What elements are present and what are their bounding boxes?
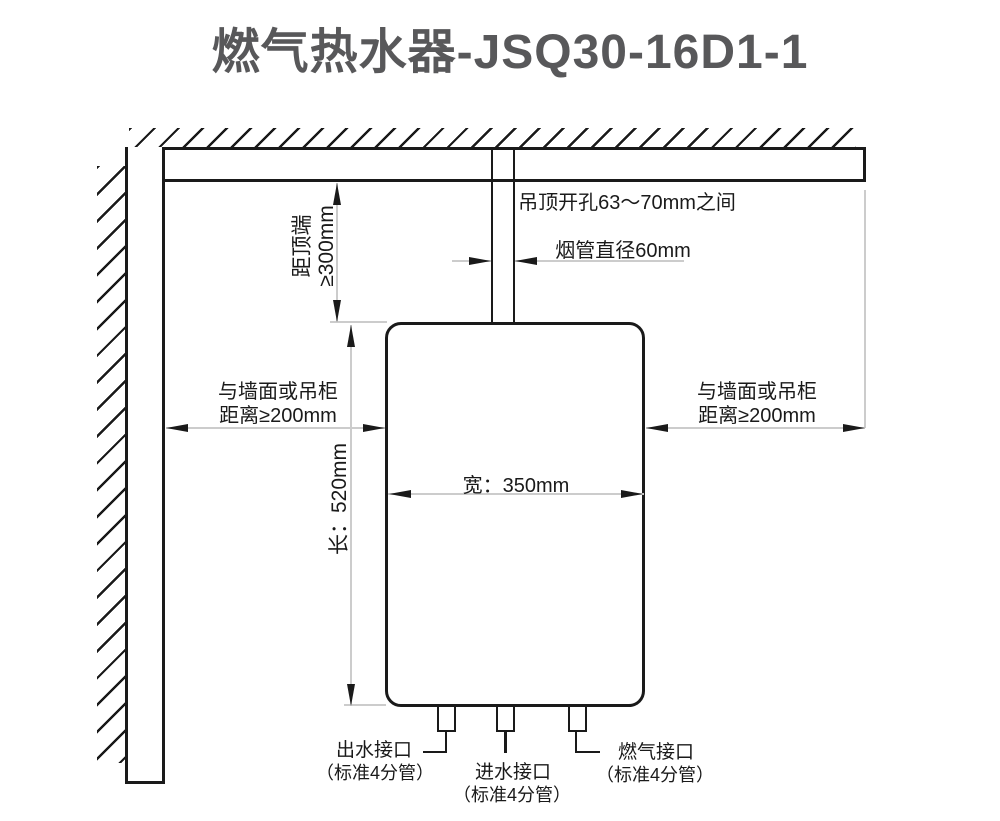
wall-hatch xyxy=(97,166,125,763)
arrowhead-right xyxy=(363,424,385,432)
wall xyxy=(125,147,165,784)
flue-pipe xyxy=(491,148,515,325)
left-clearance-line2: 距离≥200mm xyxy=(218,404,338,428)
inlet-leader-line xyxy=(504,731,507,753)
arrowhead-left xyxy=(515,257,537,265)
extension-line xyxy=(864,190,866,428)
water-outlet-stub xyxy=(437,704,456,732)
ceiling-right-edge xyxy=(863,147,866,182)
installation-diagram: 燃气热水器-JSQ30-16D1-1 距顶端 ≥300mm 长：520mm 与墙… xyxy=(0,0,1000,821)
page-title: 燃气热水器-JSQ30-16D1-1 xyxy=(212,12,809,82)
top-clearance-label: 距顶端 ≥300mm xyxy=(291,205,339,287)
top-clearance-text: 距顶端 xyxy=(291,205,315,287)
right-clearance-line2: 距离≥200mm xyxy=(697,404,817,428)
outlet-spec: （标准4分管） xyxy=(316,759,434,785)
top-clearance-value: ≥300mm xyxy=(315,205,339,287)
heater-body xyxy=(385,322,645,707)
ceiling-hole-note: 吊顶开孔63～70mm之间 xyxy=(518,186,736,215)
arrowhead-up xyxy=(347,325,355,347)
arrowhead-left xyxy=(389,490,411,498)
arrowhead-right xyxy=(469,257,491,265)
arrowhead-down xyxy=(333,300,341,322)
left-clearance-label: 与墙面或吊柜 距离≥200mm xyxy=(218,380,338,428)
water-inlet-stub xyxy=(496,704,515,732)
left-clearance-line1: 与墙面或吊柜 xyxy=(218,380,338,404)
flue-diameter-note: 烟管直径60mm xyxy=(555,234,691,263)
right-clearance-label: 与墙面或吊柜 距离≥200mm xyxy=(697,380,817,428)
right-clearance-line1: 与墙面或吊柜 xyxy=(697,380,817,404)
arrowhead-left xyxy=(646,424,668,432)
arrowhead-right xyxy=(843,424,865,432)
gas-inlet-stub xyxy=(568,704,587,732)
ceiling-hatch xyxy=(129,128,856,147)
arrowhead-left xyxy=(166,424,188,432)
arrowhead-down xyxy=(347,684,355,706)
inlet-label: 进水接口 xyxy=(475,757,551,784)
outlet-leader-line xyxy=(423,731,447,753)
outlet-label: 出水接口 xyxy=(336,735,412,762)
inlet-spec: （标准4分管） xyxy=(453,781,571,807)
unit-width-label: 宽：350mm xyxy=(463,469,570,498)
arrowhead-right xyxy=(621,490,643,498)
arrowhead-up xyxy=(333,183,341,205)
gas-label: 燃气接口 xyxy=(618,737,694,764)
gas-spec: （标准4分管） xyxy=(596,761,714,787)
gas-leader-line xyxy=(575,731,600,753)
unit-height-label: 长：520mm xyxy=(328,443,352,555)
